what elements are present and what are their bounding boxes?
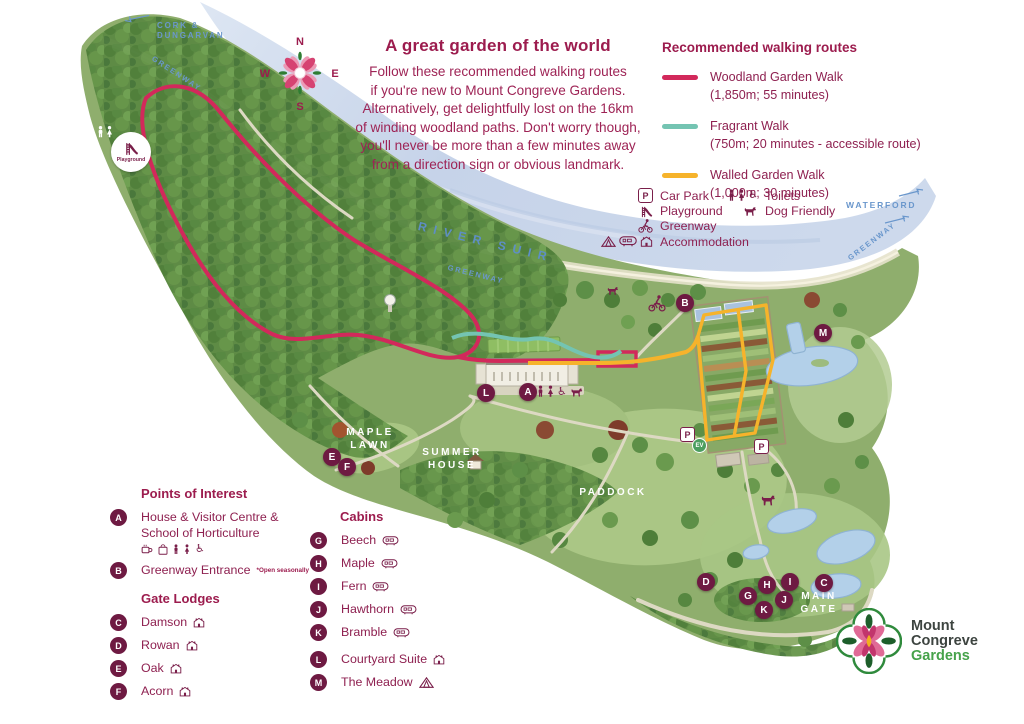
shop-bag-icon: [158, 544, 168, 555]
lodge-name: Acorn: [141, 685, 173, 699]
map-marker-k: K: [755, 601, 773, 619]
intro-line: if you're new to Mount Congreve Gardens.: [338, 82, 658, 101]
caravan-icon: [381, 559, 398, 569]
caravan-icon: [382, 536, 399, 546]
legend-dog-friendly: Dog Friendly: [728, 203, 835, 218]
logo-name-line3: Gardens: [911, 649, 978, 664]
lodge-name: Oak: [141, 662, 164, 676]
car-park-icon: P: [638, 188, 653, 203]
male-icon: [728, 189, 735, 202]
cabin-item-hawthorn: J Hawthorn: [310, 601, 500, 618]
playground-badge-label: Playground: [117, 157, 146, 163]
cyclist-map-icon: [648, 295, 666, 312]
meadow-item: M The Meadow: [310, 674, 500, 691]
suite-name: Courtyard Suite: [341, 653, 427, 667]
fragrant-route-swatch: [662, 124, 698, 129]
map-marker-m: M: [814, 324, 832, 342]
main-gate-line: MAIN: [797, 590, 841, 603]
waterford-label: WATERFORD: [846, 200, 916, 210]
legend-item-fragrant-walk: Fragrant Walk (750m; 20 minutes - access…: [662, 117, 962, 153]
intro-line: Alternatively, get delightfully lost on …: [338, 100, 658, 119]
intro-block: A great garden of the world Follow these…: [338, 36, 658, 175]
legend-playground: Playground: [583, 203, 749, 218]
caravan-icon: [619, 236, 637, 247]
main-gate-line: GATE: [797, 603, 841, 616]
dog-icon: [743, 206, 758, 217]
summer-house-line: SUMMER: [402, 446, 502, 459]
logo-flower-emblem: [836, 608, 902, 674]
cafe-icon: [141, 544, 153, 555]
suite-chip-l: L: [310, 651, 327, 668]
maple-lawn-label: MAPLE LAWN: [330, 426, 410, 452]
cork-dungarvan-label: CORK & DUNGARVAN: [157, 21, 224, 41]
cork-label-line: DUNGARVAN: [157, 31, 224, 41]
house-icon: [179, 686, 191, 697]
cabin-chip-k: K: [310, 624, 327, 641]
playground-map-badge: Playground: [111, 132, 151, 172]
cabin-item-bramble: K Bramble: [310, 624, 500, 641]
maple-lawn-line: MAPLE: [330, 426, 410, 439]
cabins-title: Cabins: [340, 509, 500, 524]
cabin-name: Bramble: [341, 626, 387, 640]
cabin-name: Maple: [341, 557, 375, 571]
cabin-item-maple: H Maple: [310, 555, 500, 572]
map-marker-a: A: [519, 383, 537, 401]
garden-map-page: N S W E A great garden of the world Foll…: [0, 0, 1024, 724]
house-icon: [433, 654, 445, 665]
map-marker-d: D: [697, 573, 715, 591]
logo-name-line1: Mount: [911, 619, 978, 634]
compass-west-label: W: [260, 68, 271, 80]
house-icon: [640, 236, 653, 247]
routes-legend-title: Recommended walking routes: [662, 40, 962, 55]
caravan-icon: [393, 628, 410, 638]
dog-map-icon: [760, 494, 777, 507]
suite-item-courtyard: L Courtyard Suite: [310, 651, 500, 668]
intro-line: Follow these recommended walking routes: [338, 63, 658, 82]
visitor-centre-amenity-icons: ♿: [537, 385, 584, 398]
wheelchair-icon: ♿: [748, 190, 758, 201]
amenity-legend-column2: ♿ Toilets Dog Friendly: [728, 188, 835, 219]
cabin-chip-i: I: [310, 578, 327, 595]
lodge-name: Damson: [141, 616, 187, 630]
poi-chip-b: B: [110, 562, 127, 579]
logo-name-line2: Congreve: [911, 634, 978, 649]
meadow-chip-m: M: [310, 674, 327, 691]
poi-a-amenity-icons: ♿: [141, 544, 279, 555]
dog-map-icon: [606, 286, 620, 296]
legend-accommodation: Accommodation: [583, 234, 749, 249]
compass-south-label: S: [296, 101, 303, 113]
cabin-name: Fern: [341, 580, 366, 594]
lodge-name: Rowan: [141, 639, 180, 653]
map-marker-j: J: [775, 591, 793, 609]
cabin-chip-g: G: [310, 532, 327, 549]
legend-item-woodland-walk: Woodland Garden Walk (1,850m; 55 minutes…: [662, 68, 962, 104]
greenway-direction-arrow: [884, 215, 910, 225]
legend-label: Dog Friendly: [765, 204, 835, 218]
waterford-direction-arrow: [898, 188, 924, 198]
legend-label: Car Park: [660, 189, 709, 203]
mount-congreve-logo: Mount Congreve Gardens: [836, 608, 978, 674]
page-title: A great garden of the world: [338, 36, 658, 56]
map-marker-b: B: [676, 294, 694, 312]
lodge-chip-c: C: [110, 614, 127, 631]
female-icon: [738, 189, 745, 202]
wheelchair-icon: ♿: [557, 387, 567, 398]
wheelchair-icon: ♿: [195, 544, 205, 555]
house-icon: [193, 617, 205, 628]
cabin-item-beech: G Beech: [310, 532, 500, 549]
female-icon: [106, 125, 113, 139]
map-marker-g: G: [739, 587, 757, 605]
cork-label-line: CORK &: [157, 21, 224, 31]
map-marker-c: C: [815, 574, 833, 592]
tent-icon: [419, 677, 434, 688]
ev-charging-marker: EV: [692, 438, 707, 453]
male-icon: [97, 125, 104, 139]
cabin-chip-h: H: [310, 555, 327, 572]
cork-direction-arrow: [124, 13, 150, 24]
poi-title: Points of Interest: [141, 486, 350, 501]
cabin-name: Beech: [341, 534, 376, 548]
toilets-map-icon: [97, 125, 113, 139]
poi-chip-a: A: [110, 509, 127, 526]
legend-label: Toilets: [765, 189, 800, 203]
greenway-cyclist-icon: [638, 219, 653, 233]
cabins-panel: Cabins G Beech H Maple I Fern J Hawthorn…: [310, 509, 500, 697]
cabin-chip-j: J: [310, 601, 327, 618]
map-marker-f: F: [338, 458, 356, 476]
legend-label: Greenway: [660, 219, 716, 233]
lodge-chip-d: D: [110, 637, 127, 654]
lodge-chip-f: F: [110, 683, 127, 700]
legend-greenway: Greenway: [583, 219, 749, 234]
compass-rose: N S W E: [254, 33, 346, 113]
paddock-label: PADDOCK: [553, 486, 673, 499]
intro-line: from a direction sign or obvious landmar…: [338, 156, 658, 175]
legend-label: Accommodation: [660, 235, 749, 249]
poi-note: *Open seasonally: [257, 564, 310, 578]
intro-line: you'll never be more than a few minutes …: [338, 137, 658, 156]
poi-name-line: House & Visitor Centre &: [141, 509, 279, 525]
cabin-name: Hawthorn: [341, 603, 394, 617]
map-marker-h: H: [758, 576, 776, 594]
male-icon: [173, 544, 179, 555]
poi-name: Greenway Entrance: [141, 564, 251, 578]
map-marker-l: L: [477, 384, 495, 402]
poi-name-line: School of Horticulture: [141, 525, 279, 541]
house-icon: [186, 640, 198, 651]
cabin-item-fern: I Fern: [310, 578, 500, 595]
caravan-icon: [372, 582, 389, 592]
caravan-icon: [400, 605, 417, 615]
route-name: Fragrant Walk: [710, 119, 789, 133]
male-icon: [537, 385, 544, 398]
amenity-legend-column1: P Car Park Playground Greenway Accommoda…: [583, 188, 749, 250]
compass-north-label: N: [296, 36, 304, 48]
woodland-route-swatch: [662, 75, 698, 80]
playground-icon: [124, 141, 139, 156]
female-icon: [547, 385, 554, 398]
female-icon: [184, 544, 190, 555]
meadow-name: The Meadow: [341, 676, 413, 690]
summer-house-line: HOUSE: [402, 459, 502, 472]
legend-toilets: ♿ Toilets: [728, 188, 835, 203]
route-name: Woodland Garden Walk: [710, 70, 843, 84]
summer-house-label: SUMMER HOUSE: [402, 446, 502, 472]
car-park-marker-2: P: [754, 439, 769, 454]
route-name: Walled Garden Walk: [710, 168, 825, 182]
dog-icon: [570, 387, 584, 398]
legend-label: Playground: [660, 204, 723, 218]
playground-icon: [640, 205, 653, 218]
house-icon: [170, 663, 182, 674]
route-detail: (750m; 20 minutes - accessible route): [710, 137, 921, 151]
walled-route-swatch: [662, 173, 698, 178]
route-detail: (1,850m; 55 minutes): [710, 88, 829, 102]
legend-car-park: P Car Park: [583, 188, 749, 203]
main-gate-label: MAIN GATE: [797, 590, 841, 616]
lodge-chip-e: E: [110, 660, 127, 677]
map-marker-i: I: [781, 573, 799, 591]
maple-lawn-line: LAWN: [330, 439, 410, 452]
tent-icon: [601, 236, 616, 247]
intro-line: of winding woodland paths. Don't worry t…: [338, 119, 658, 138]
